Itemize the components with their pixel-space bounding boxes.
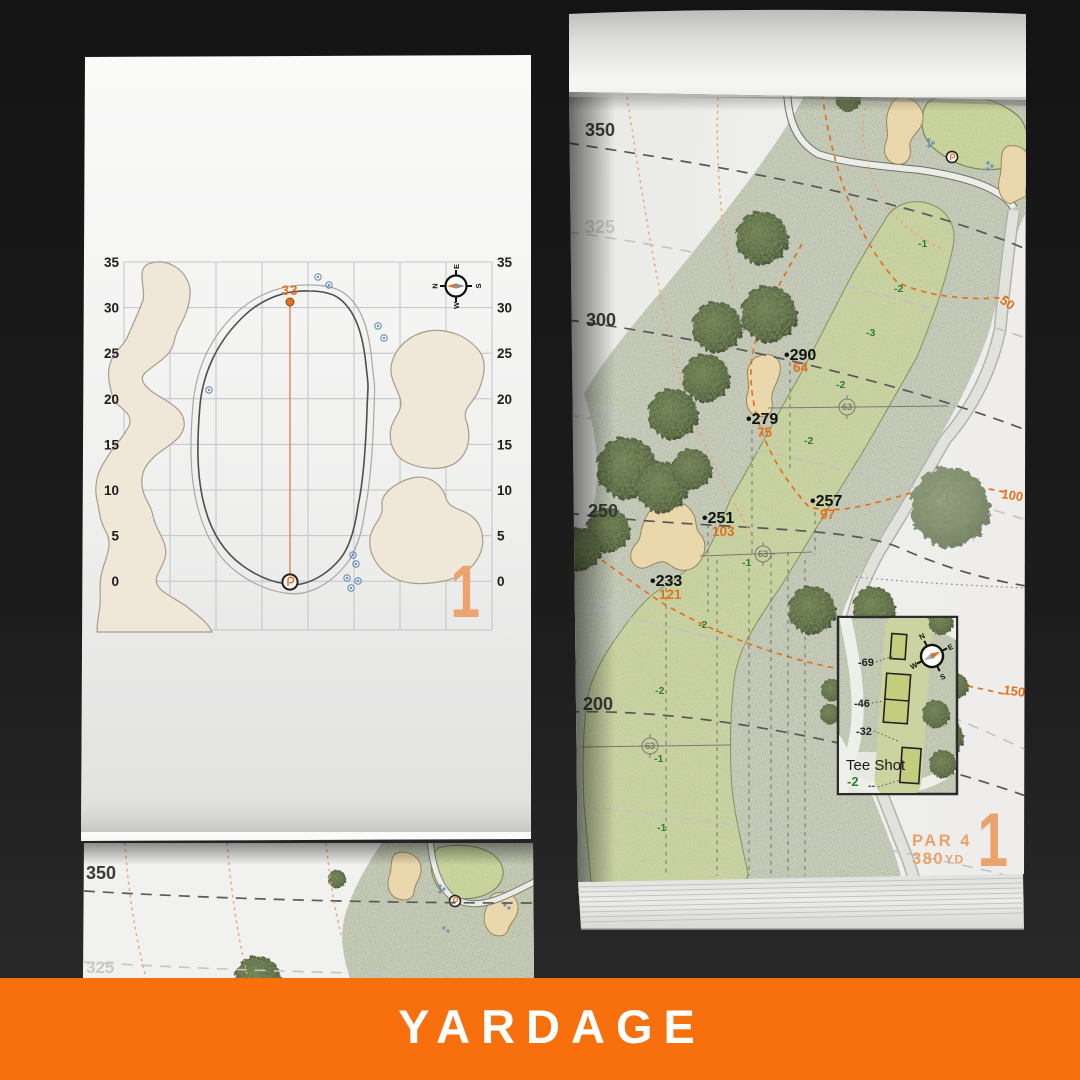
svg-text:75: 75 <box>757 425 773 440</box>
svg-text:-1: -1 <box>657 822 666 834</box>
svg-text:15: 15 <box>497 437 513 452</box>
svg-text:30: 30 <box>497 301 512 316</box>
svg-text:350: 350 <box>86 863 116 883</box>
svg-text:25: 25 <box>104 346 120 361</box>
svg-text:35: 35 <box>497 255 513 270</box>
svg-text:-2: -2 <box>698 619 707 631</box>
svg-text:-32: -32 <box>856 726 872 738</box>
svg-text:15: 15 <box>104 437 120 452</box>
svg-text:30: 30 <box>104 301 119 316</box>
svg-text:33: 33 <box>281 283 298 298</box>
svg-text:E: E <box>452 264 461 269</box>
svg-text:63: 63 <box>758 549 768 559</box>
svg-text:S: S <box>474 283 483 288</box>
svg-text:64: 64 <box>793 360 809 375</box>
svg-text:W: W <box>452 301 461 309</box>
svg-text:-2: -2 <box>655 685 664 697</box>
svg-text:63: 63 <box>842 402 852 412</box>
svg-text:-1: -1 <box>654 753 663 765</box>
svg-text:63: 63 <box>645 741 655 751</box>
svg-text:325: 325 <box>86 958 114 977</box>
svg-text:-2: -2 <box>804 435 813 447</box>
svg-text:-2: -2 <box>836 379 845 391</box>
svg-text:1: 1 <box>450 550 480 633</box>
svg-text:10: 10 <box>497 483 512 498</box>
svg-text:PAR 4: PAR 4 <box>912 832 972 850</box>
svg-text:--: -- <box>868 780 876 792</box>
svg-text:-2: -2 <box>847 774 859 789</box>
svg-text:0: 0 <box>497 574 505 589</box>
svg-text:380YD: 380YD <box>912 850 965 868</box>
svg-text:5: 5 <box>111 529 119 544</box>
svg-text:25: 25 <box>497 346 513 361</box>
svg-text:-46: -46 <box>854 698 870 710</box>
svg-text:-2: -2 <box>894 283 903 295</box>
svg-text:20: 20 <box>497 392 512 407</box>
svg-text:-69: -69 <box>858 657 874 669</box>
svg-text:121: 121 <box>659 587 682 602</box>
svg-text:-1: -1 <box>742 557 751 569</box>
svg-text:97: 97 <box>820 507 835 522</box>
svg-text:Tee Shot: Tee Shot <box>846 757 906 774</box>
svg-text:N: N <box>431 283 440 288</box>
svg-text:150: 150 <box>1003 682 1027 700</box>
svg-text:0: 0 <box>111 574 119 589</box>
svg-text:5: 5 <box>497 529 505 544</box>
svg-text:1: 1 <box>978 798 1008 883</box>
svg-text:20: 20 <box>104 392 119 407</box>
svg-text:10: 10 <box>104 483 119 498</box>
svg-text:103: 103 <box>712 524 735 539</box>
svg-text:YARDAGE: YARDAGE <box>398 1000 706 1053</box>
svg-text:-3: -3 <box>866 327 875 339</box>
svg-text:35: 35 <box>104 255 120 270</box>
svg-text:-1: -1 <box>918 238 927 250</box>
